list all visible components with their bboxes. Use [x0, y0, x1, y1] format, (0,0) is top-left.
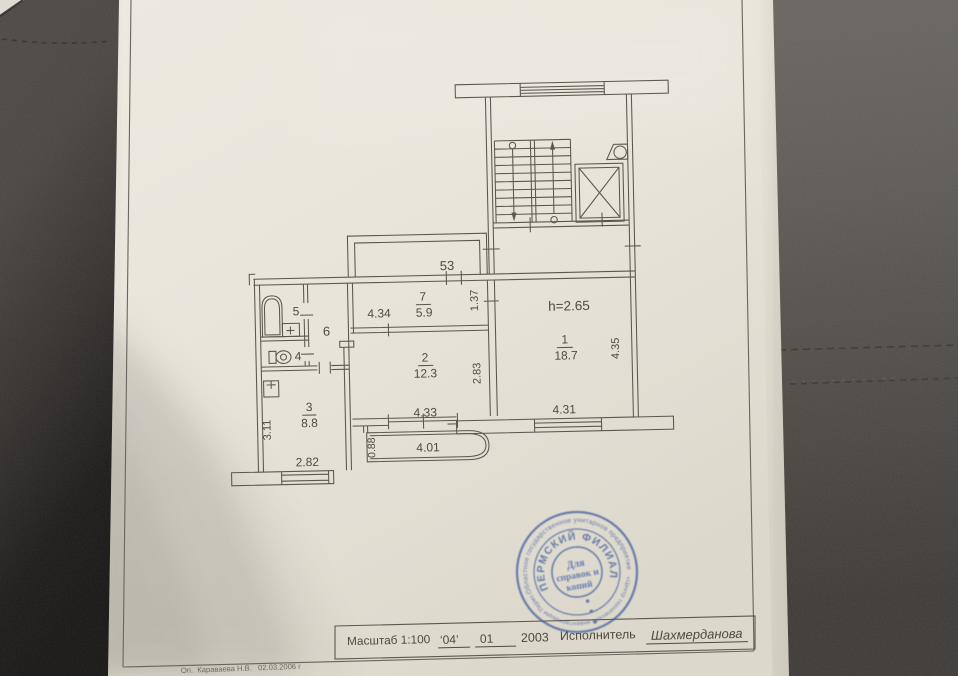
svg-text:5: 5 — [293, 304, 300, 318]
svg-text:2: 2 — [422, 350, 429, 364]
svg-text:01: 01 — [480, 632, 494, 646]
svg-text:2003: 2003 — [521, 630, 549, 645]
svg-text:4.35: 4.35 — [610, 338, 622, 360]
svg-text:5.9: 5.9 — [416, 305, 433, 319]
svg-text:4.01: 4.01 — [416, 440, 440, 455]
svg-text:4: 4 — [295, 349, 302, 363]
svg-text:53: 53 — [440, 258, 455, 273]
svg-text:2.82: 2.82 — [295, 455, 319, 470]
svg-text:‘04’: ‘04’ — [440, 632, 459, 646]
svg-text:4.31: 4.31 — [552, 402, 576, 417]
svg-text:h=2.65: h=2.65 — [548, 298, 590, 314]
svg-text:Шахмерданова: Шахмерданова — [651, 626, 743, 643]
svg-text:7: 7 — [419, 289, 426, 303]
svg-text:18.7: 18.7 — [554, 348, 578, 363]
svg-text:1.37: 1.37 — [469, 290, 481, 312]
svg-text:Исполнитель: Исполнитель — [560, 627, 636, 643]
svg-text:3.11: 3.11 — [261, 420, 273, 441]
svg-text:12.3: 12.3 — [414, 366, 438, 381]
svg-text:0.88: 0.88 — [366, 437, 378, 458]
svg-text:Масштаб 1:100: Масштаб 1:100 — [347, 632, 431, 648]
svg-text:8.8: 8.8 — [301, 416, 318, 430]
svg-text:4.34: 4.34 — [367, 306, 391, 321]
svg-text:6: 6 — [323, 324, 331, 339]
svg-text:3: 3 — [306, 400, 313, 414]
svg-text:2.83: 2.83 — [471, 363, 483, 385]
svg-text:1: 1 — [561, 332, 568, 346]
